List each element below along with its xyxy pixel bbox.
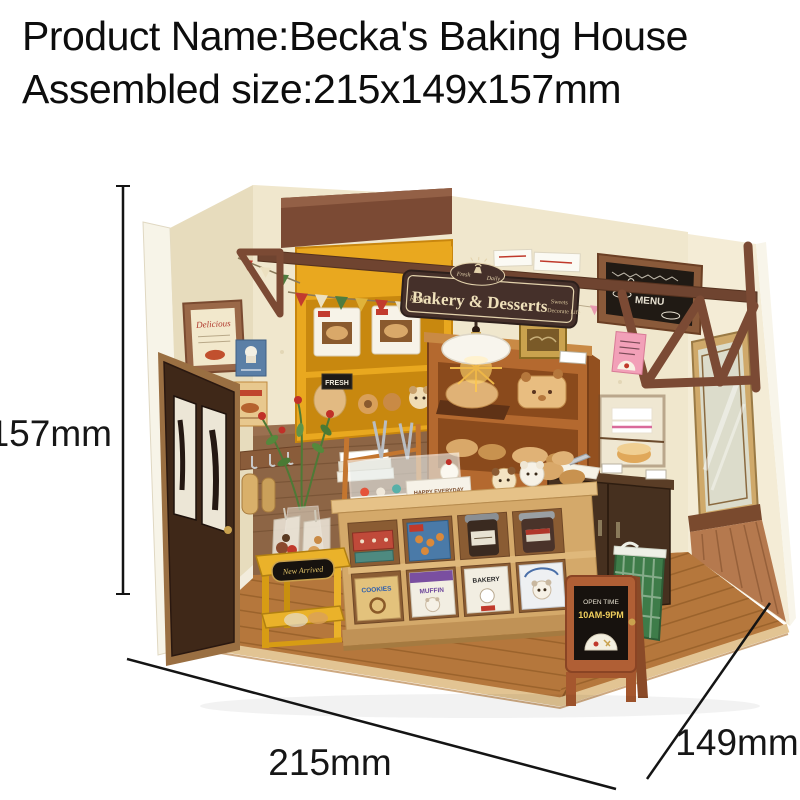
pink-sticky-note (612, 332, 646, 375)
new-arrived-plate: New Arrived (271, 558, 334, 582)
easel-line1: OPEN TIME (583, 599, 619, 606)
muffin-box: MUFFIN (409, 570, 455, 617)
cookies-box: COOKIES (355, 576, 401, 621)
fresh-tag: FRESH (322, 374, 352, 389)
delicious-text: Delicious (195, 318, 231, 330)
depth-label: 149mm (675, 722, 798, 763)
product-photo: Delicious (0, 0, 800, 800)
dollhouse-diorama: Delicious (120, 185, 800, 718)
sign-tagline1: Sweets (551, 299, 569, 306)
svg-text:FRESH: FRESH (325, 380, 349, 387)
easel-line2: 10AM-9PM (578, 610, 624, 620)
bakery-box: BAKERY (464, 566, 510, 613)
white-teddy (520, 461, 544, 486)
pastry-box (314, 308, 360, 356)
door-knob (224, 526, 232, 534)
height-label: 157mm (0, 413, 112, 454)
base-shadow (200, 694, 760, 718)
entry-door (158, 352, 240, 666)
width-label: 215mm (268, 742, 391, 783)
blue-poster (236, 340, 266, 376)
cake-display-cube (600, 396, 666, 479)
menu-board-subtitle: MENU (635, 295, 665, 308)
bear-box (519, 562, 565, 609)
product-screenshot: Product Name:Becka's Baking House Assemb… (0, 0, 800, 800)
shop-window (692, 330, 758, 522)
sign-badge-right: Daily (485, 276, 500, 283)
height-dimension: 157mm (0, 186, 130, 594)
sign-badge-left: Fresh (455, 272, 470, 279)
